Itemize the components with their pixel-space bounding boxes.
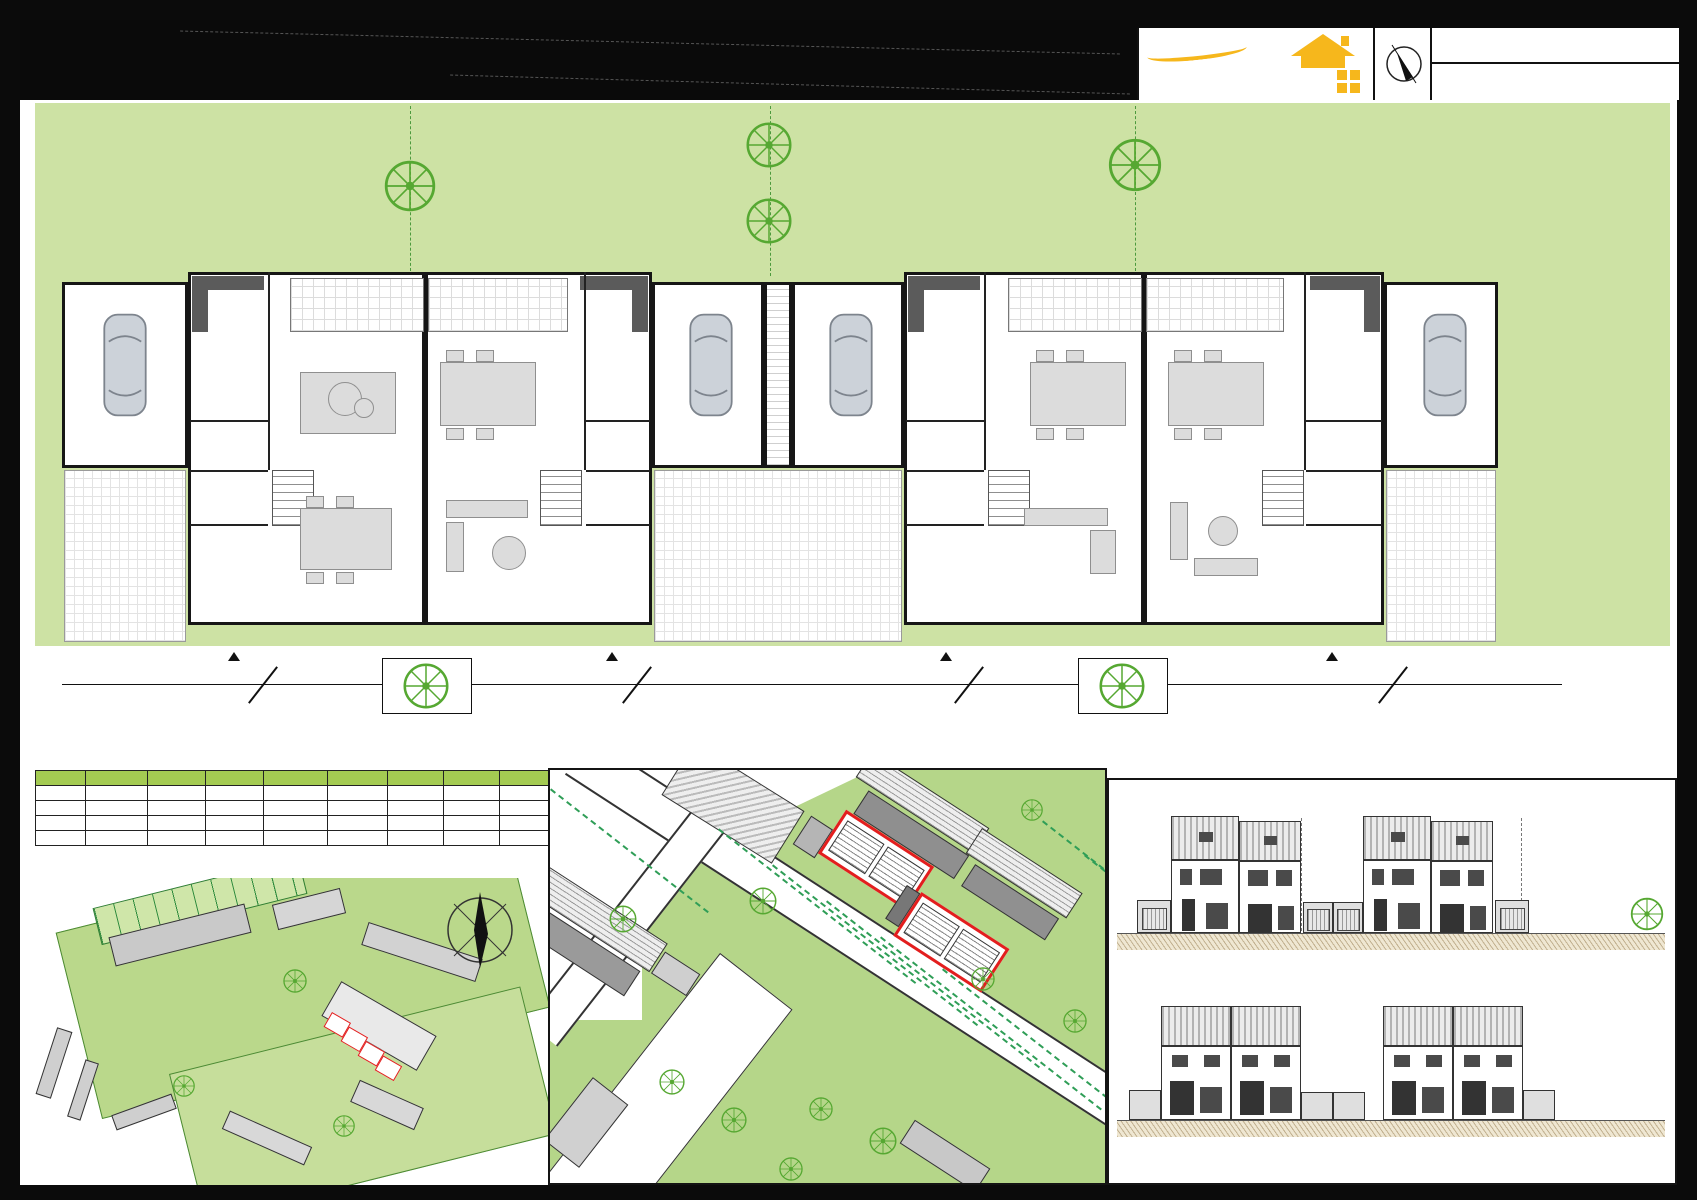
compass-icon <box>1383 36 1425 92</box>
elevation-garage <box>1523 1090 1555 1120</box>
interior-wall <box>1304 272 1306 470</box>
section-marker <box>1326 652 1338 661</box>
interior-wall <box>190 524 268 526</box>
tree-icon <box>658 1068 686 1096</box>
elevation-garage <box>1301 1092 1333 1120</box>
kitchen-counter <box>580 276 648 290</box>
kitchen-counter <box>1364 290 1380 332</box>
interior-wall <box>906 470 984 472</box>
ground-hatch <box>1117 933 1665 950</box>
north-arrow-box <box>1373 28 1432 100</box>
kitchen-counter <box>632 290 648 332</box>
car-icon <box>684 300 738 430</box>
elevation-roof <box>1171 816 1239 860</box>
interior-wall <box>586 470 650 472</box>
elevation-roof <box>1161 1006 1231 1046</box>
tree-icon <box>868 1126 898 1156</box>
elevation-garage <box>1137 900 1171 933</box>
parcel-boundary <box>1084 854 1107 991</box>
driveway <box>1386 470 1496 642</box>
interior-wall <box>586 524 650 526</box>
logo-squares <box>1337 70 1361 94</box>
car-icon <box>98 300 152 430</box>
table-row <box>36 816 549 831</box>
elevation-garage <box>1333 1092 1365 1120</box>
lot-label-2-17 <box>938 1128 946 1134</box>
table-row <box>36 786 549 801</box>
table-row <box>36 831 549 846</box>
interior-wall <box>268 272 270 470</box>
lot-label-2-19 <box>874 1062 882 1068</box>
interior-wall <box>1306 470 1382 472</box>
section-marker <box>606 652 618 661</box>
stairs <box>540 470 582 526</box>
tree-icon <box>608 904 638 934</box>
tree-icon <box>748 886 778 916</box>
interior-wall <box>586 420 650 422</box>
terrace-2-21 <box>1146 278 1284 332</box>
elevation-body <box>1431 861 1493 933</box>
kitchen-counter <box>908 290 924 332</box>
lot-label-2-18 <box>934 1070 942 1076</box>
table-header-row <box>36 771 549 786</box>
planter <box>382 658 472 714</box>
situation-map <box>32 878 548 1185</box>
elevation-roof <box>1239 821 1301 861</box>
elevation-body <box>1239 861 1301 933</box>
axis-line <box>1301 818 1302 936</box>
lot-label-2-20 <box>834 1032 842 1038</box>
tree-icon <box>172 1074 196 1098</box>
driveway <box>64 470 186 642</box>
house-icon <box>1289 32 1363 70</box>
planter <box>1078 658 1168 714</box>
elevation-roof <box>1363 816 1431 860</box>
kitchen-counter <box>908 276 980 290</box>
interior-wall <box>906 524 984 526</box>
site-plan-panel <box>548 768 1107 1185</box>
elevation-garage <box>1333 902 1363 933</box>
car-icon <box>1418 300 1472 430</box>
tree-icon <box>1020 798 1044 822</box>
compass-rose <box>430 878 530 988</box>
table-row <box>36 801 549 816</box>
tree-icon <box>1106 136 1164 194</box>
interior-wall <box>984 272 986 470</box>
tree-icon <box>282 968 308 994</box>
date-cell <box>1432 28 1679 64</box>
terrace-2-20 <box>1008 278 1142 332</box>
driveway <box>654 470 902 642</box>
logo-swoosh <box>1146 39 1247 65</box>
tree-icon <box>970 966 996 992</box>
revision-box <box>1430 28 1679 100</box>
elevation-body <box>1161 1046 1231 1120</box>
interior-wall <box>1306 420 1382 422</box>
elevation-garage <box>1303 902 1333 933</box>
elevation-garage <box>1129 1090 1161 1120</box>
elevation-body <box>1453 1046 1523 1120</box>
map-building <box>900 1120 991 1185</box>
reference-line <box>450 75 1130 95</box>
reference-line <box>180 31 1120 55</box>
section-marker <box>228 652 240 661</box>
lot-label-2-4 <box>956 800 964 806</box>
lots-table <box>35 770 549 846</box>
interior-wall <box>190 420 268 422</box>
tree-icon <box>808 1096 834 1122</box>
elevation-roof <box>1231 1006 1301 1046</box>
stairs <box>1262 470 1304 526</box>
elevation-body <box>1231 1046 1301 1120</box>
elevation-garage <box>1495 900 1529 933</box>
interior-wall <box>906 420 984 422</box>
architectural-sheet: { "header": { "location": "Quartier du L… <box>0 0 1697 1200</box>
shrub-icon <box>1097 661 1147 711</box>
tree-icon <box>778 1156 804 1182</box>
terrace-2-18 <box>290 278 424 332</box>
tree-icon <box>332 1114 356 1138</box>
callout-line <box>62 684 1562 685</box>
map-building <box>36 1027 73 1099</box>
compass-rose-icon <box>440 890 520 970</box>
shrub-icon <box>401 661 451 711</box>
car-icon <box>824 300 878 430</box>
kitchen-counter <box>1310 276 1380 290</box>
tree-icon <box>1062 1008 1088 1034</box>
elevation-roof <box>1453 1006 1523 1046</box>
section-marker <box>940 652 952 661</box>
terrace-2-19 <box>428 278 568 332</box>
tree-icon <box>744 120 794 170</box>
tree-icon <box>382 158 438 214</box>
elevation-roof <box>1431 821 1493 861</box>
ground-hatch <box>1117 1120 1665 1137</box>
lot-label-2-5 <box>1000 832 1008 838</box>
elevation-body <box>1363 860 1431 933</box>
kitchen-counter <box>192 276 264 290</box>
interior-wall <box>190 470 268 472</box>
elevation-roof <box>1383 1006 1453 1046</box>
tree-icon <box>744 196 794 246</box>
indice-cell <box>1432 64 1679 100</box>
elevation-body <box>1171 860 1239 933</box>
party-wall-strip <box>764 282 792 468</box>
tree-icon <box>1629 896 1665 932</box>
interior-wall <box>1306 524 1382 526</box>
elevation-body <box>1383 1046 1453 1120</box>
tree-icon <box>720 1106 748 1134</box>
interior-wall <box>584 272 586 470</box>
logo-box <box>1137 28 1375 100</box>
kitchen-counter <box>192 290 208 332</box>
facades-panel <box>1107 778 1677 1185</box>
